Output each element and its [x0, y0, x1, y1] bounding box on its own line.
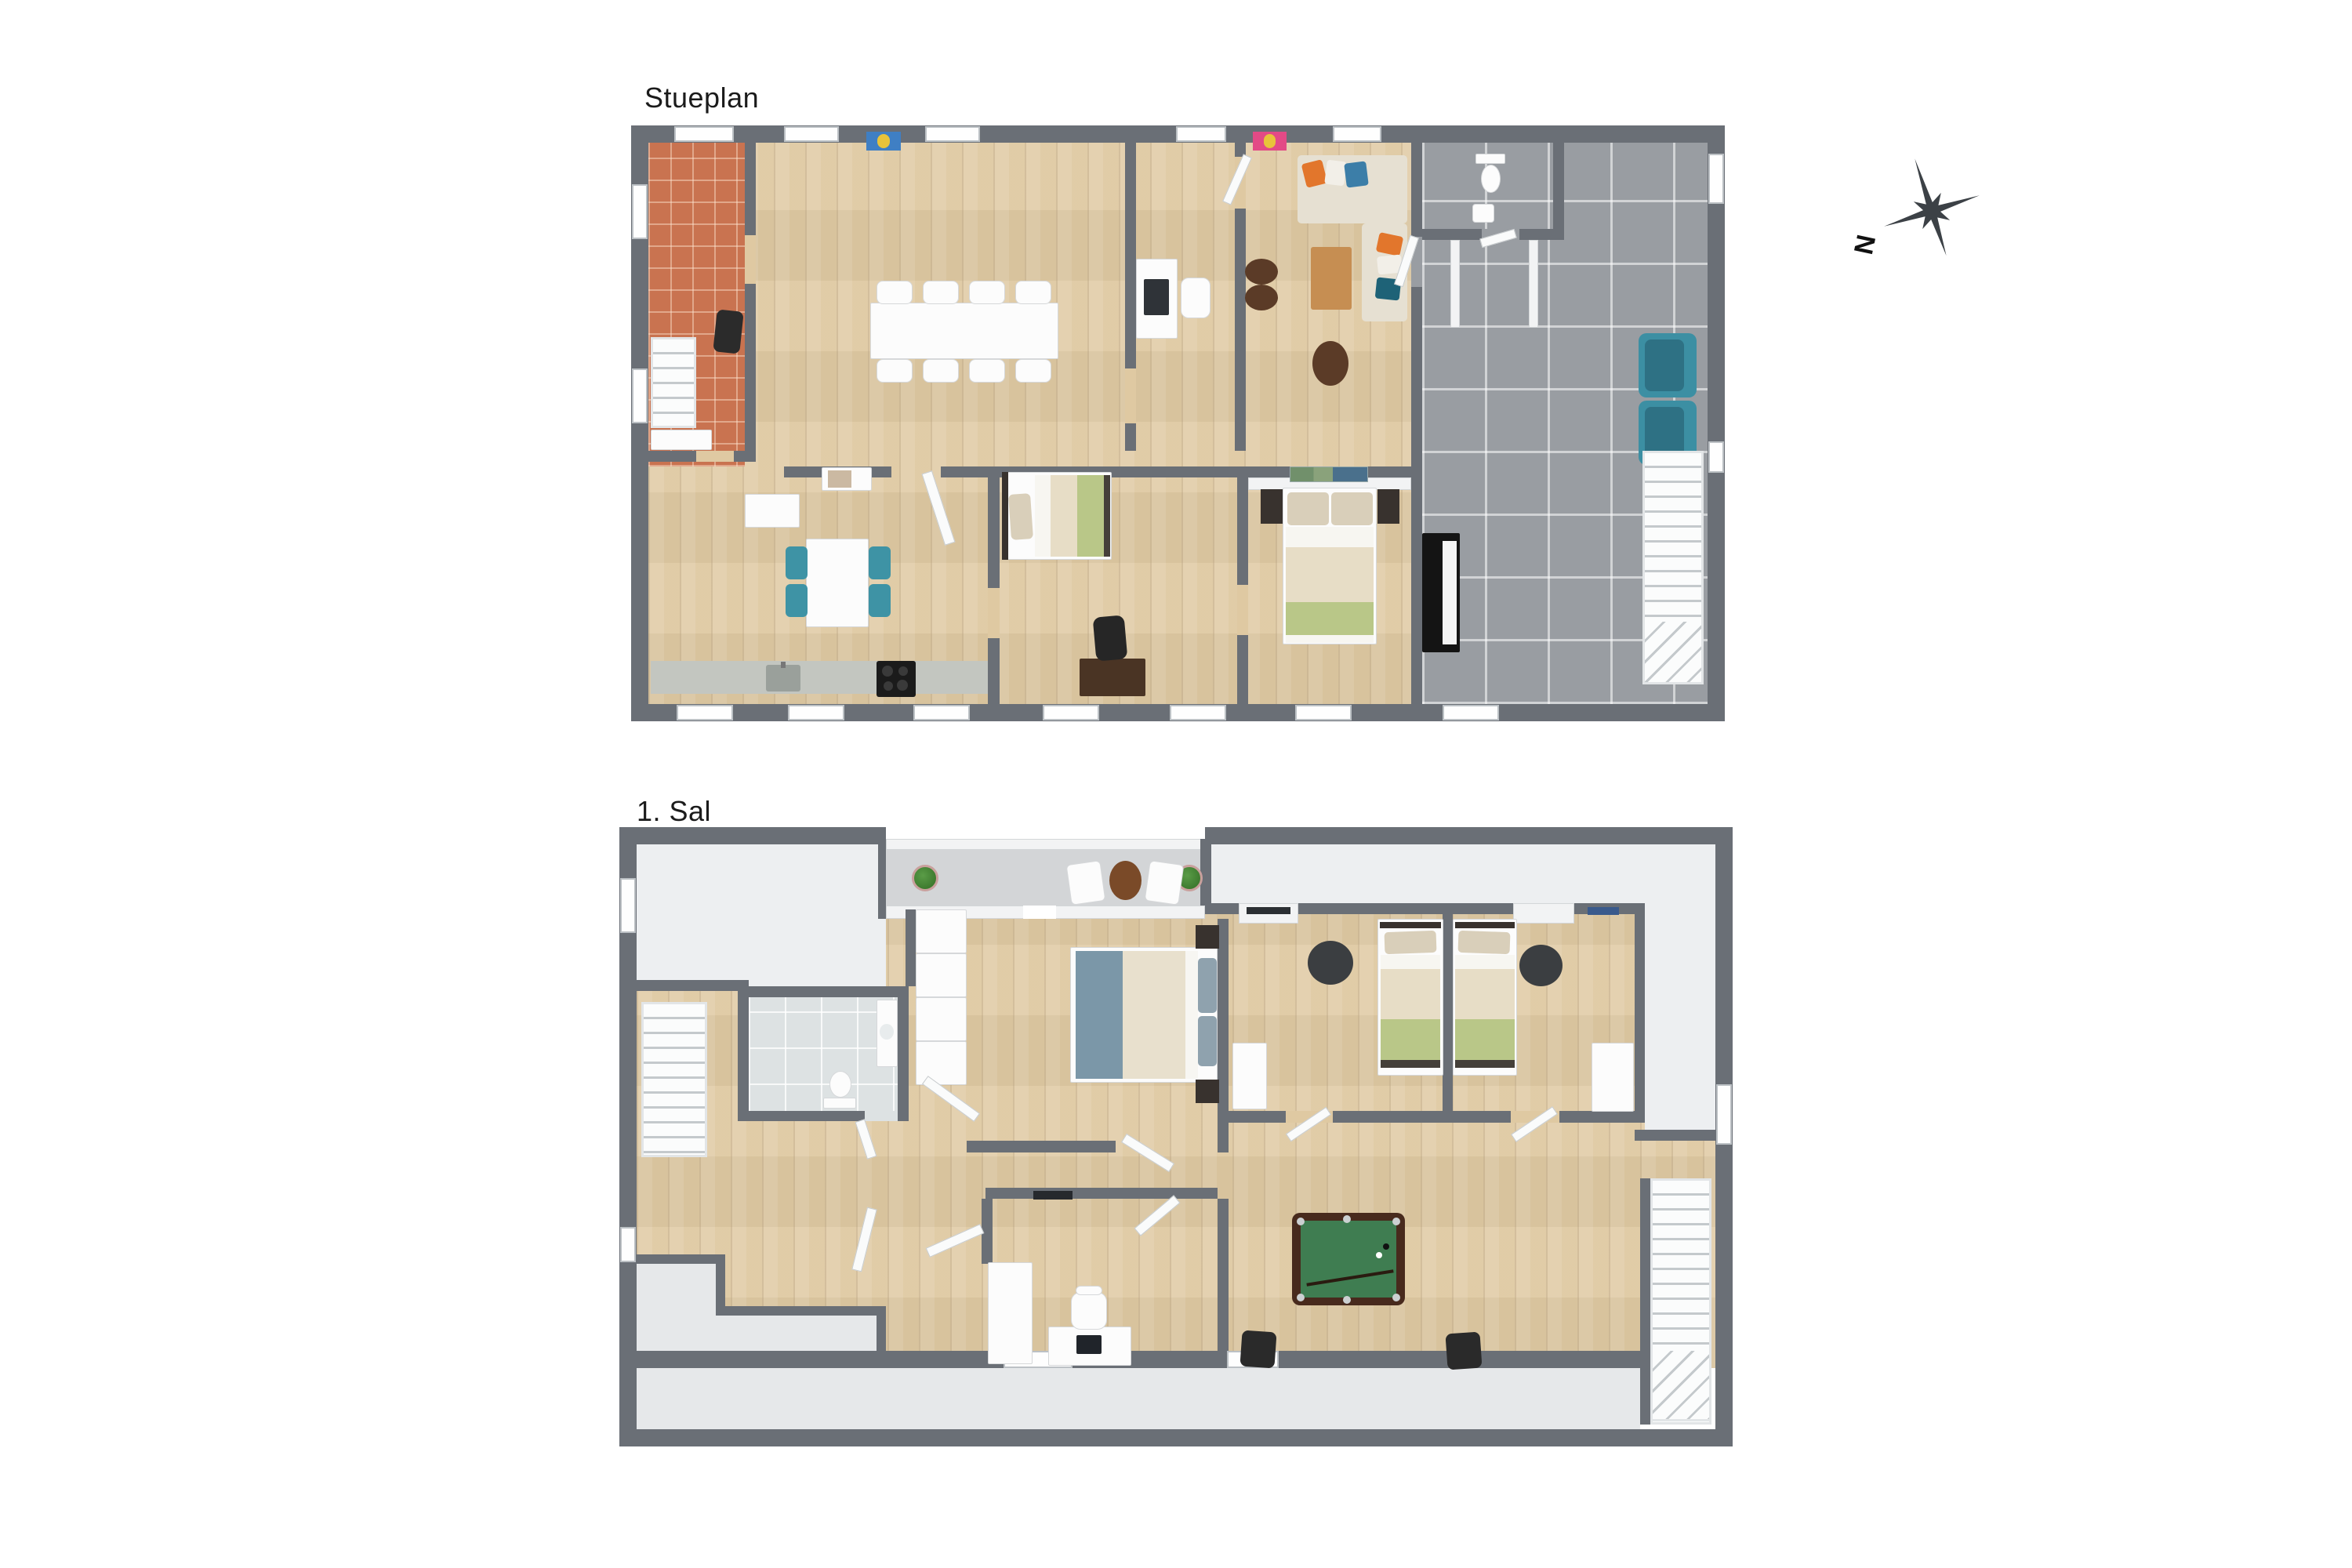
kids-bed-pillow: [1385, 931, 1437, 954]
wall-bottomleft: [725, 1306, 886, 1316]
balcony-parapet: [886, 839, 1205, 850]
facade-door-gap: [1023, 906, 1056, 919]
kids-bed-cream: [1455, 969, 1515, 1019]
wall-bottomleft: [716, 1264, 725, 1316]
toilet-tank: [823, 1098, 856, 1109]
kids-rug: [1519, 945, 1563, 986]
pool-pocket: [1297, 1218, 1305, 1225]
balcony-chair: [1066, 860, 1106, 906]
master-bed-sheet: [1185, 951, 1198, 1079]
pool-felt: [1301, 1221, 1396, 1298]
master-bed-cream: [1123, 951, 1185, 1079]
balcony-plant: [912, 865, 938, 891]
toilet-bowl: [829, 1071, 851, 1098]
master-bed-blue: [1076, 951, 1123, 1079]
pool-pocket: [1392, 1294, 1400, 1301]
wall-bath-north: [749, 986, 909, 997]
master-pillow: [1198, 958, 1217, 1013]
window: [1716, 1084, 1732, 1145]
window-sill: [1513, 903, 1574, 924]
office-monitor: [1076, 1335, 1102, 1354]
office-chair: [1071, 1292, 1107, 1330]
headboard-cabinet: [1196, 925, 1219, 949]
wall-stairs-west: [1640, 1178, 1650, 1425]
radiator: [1033, 1191, 1073, 1200]
wall-kids-divider: [1443, 903, 1453, 1123]
kids-bed-green: [1455, 1019, 1515, 1060]
wall-bottomleft: [637, 1254, 725, 1264]
kids-bed-cream: [1381, 969, 1440, 1019]
wall-rightcol-south: [1635, 1130, 1715, 1141]
radiator: [1247, 907, 1290, 914]
office-cabinet: [988, 1262, 1033, 1364]
balcony-chair: [1145, 860, 1185, 906]
unheated-topstrip: [1205, 844, 1645, 903]
pool-pocket: [1392, 1218, 1400, 1225]
compass-rose: N: [1850, 145, 2023, 286]
wardrobe: [916, 909, 967, 953]
kids-rug: [1308, 941, 1353, 985]
office-chair-back: [1076, 1286, 1102, 1295]
wardrobe: [916, 1041, 967, 1085]
wall-master-south: [967, 1141, 1116, 1152]
outer-wall-top: [1205, 827, 1733, 844]
wall-bottomleft: [877, 1316, 886, 1351]
pool-pocket: [1343, 1296, 1351, 1304]
kids-bed-foot: [1381, 1060, 1440, 1068]
wall-nook: [906, 909, 916, 986]
unheated-rightcol: [1645, 844, 1715, 1141]
kids-dresser: [1232, 1043, 1267, 1109]
kids-bed-foot: [1455, 1060, 1515, 1068]
window: [620, 878, 636, 933]
balcony-table: [1109, 861, 1142, 900]
pool-ball-white: [1376, 1252, 1382, 1258]
compass-star-icon: [1867, 145, 1994, 271]
pool-pocket: [1297, 1294, 1305, 1301]
stairs-up: [641, 1002, 707, 1157]
pool-pocket: [1343, 1215, 1351, 1223]
kids-bed-green: [1381, 1019, 1440, 1060]
outer-wall-top: [619, 827, 886, 844]
wall-bath-west: [738, 986, 749, 1121]
lounge-chair: [1445, 1332, 1482, 1370]
wardrobe: [916, 997, 967, 1041]
vanity-basin: [880, 1024, 894, 1040]
unheated-bottomstrip: [637, 1368, 1640, 1429]
wall-kids-east: [1635, 903, 1645, 1123]
wall-kids-south: [1218, 1111, 1645, 1123]
compass-north-label: N: [1850, 232, 1882, 257]
window: [620, 1227, 636, 1262]
radiator-blue: [1588, 907, 1619, 915]
lounge-chair: [1240, 1330, 1276, 1369]
balcony-side-wall: [878, 839, 886, 919]
headboard-cabinet: [1196, 1080, 1219, 1103]
wall-bath-east: [898, 986, 909, 1121]
kids-bed-headboard: [1455, 922, 1515, 928]
wall-topleft-south: [637, 980, 749, 991]
wall-office-north: [985, 1188, 1218, 1199]
door-gap: [865, 1111, 898, 1121]
wall-office-pool: [1218, 1199, 1229, 1368]
pool-ball-black: [1383, 1243, 1389, 1250]
knee-wall: [637, 1351, 1640, 1368]
kids-bed-headboard: [1380, 922, 1441, 928]
kids-bed-pillow: [1458, 931, 1511, 954]
wardrobe: [916, 953, 967, 997]
unheated-topleft: [637, 844, 886, 986]
master-pillow: [1198, 1016, 1217, 1066]
stairs-winder: [1650, 1351, 1711, 1421]
kids-bed-sheet: [1455, 955, 1515, 969]
wall-bath-south: [738, 1111, 866, 1121]
outer-wall-bottom: [619, 1429, 1733, 1446]
kids-dresser: [1592, 1043, 1634, 1112]
floorplan-image: Stueplan 1. Sal N: [0, 0, 2352, 1568]
kids-bed-sheet: [1381, 955, 1440, 969]
